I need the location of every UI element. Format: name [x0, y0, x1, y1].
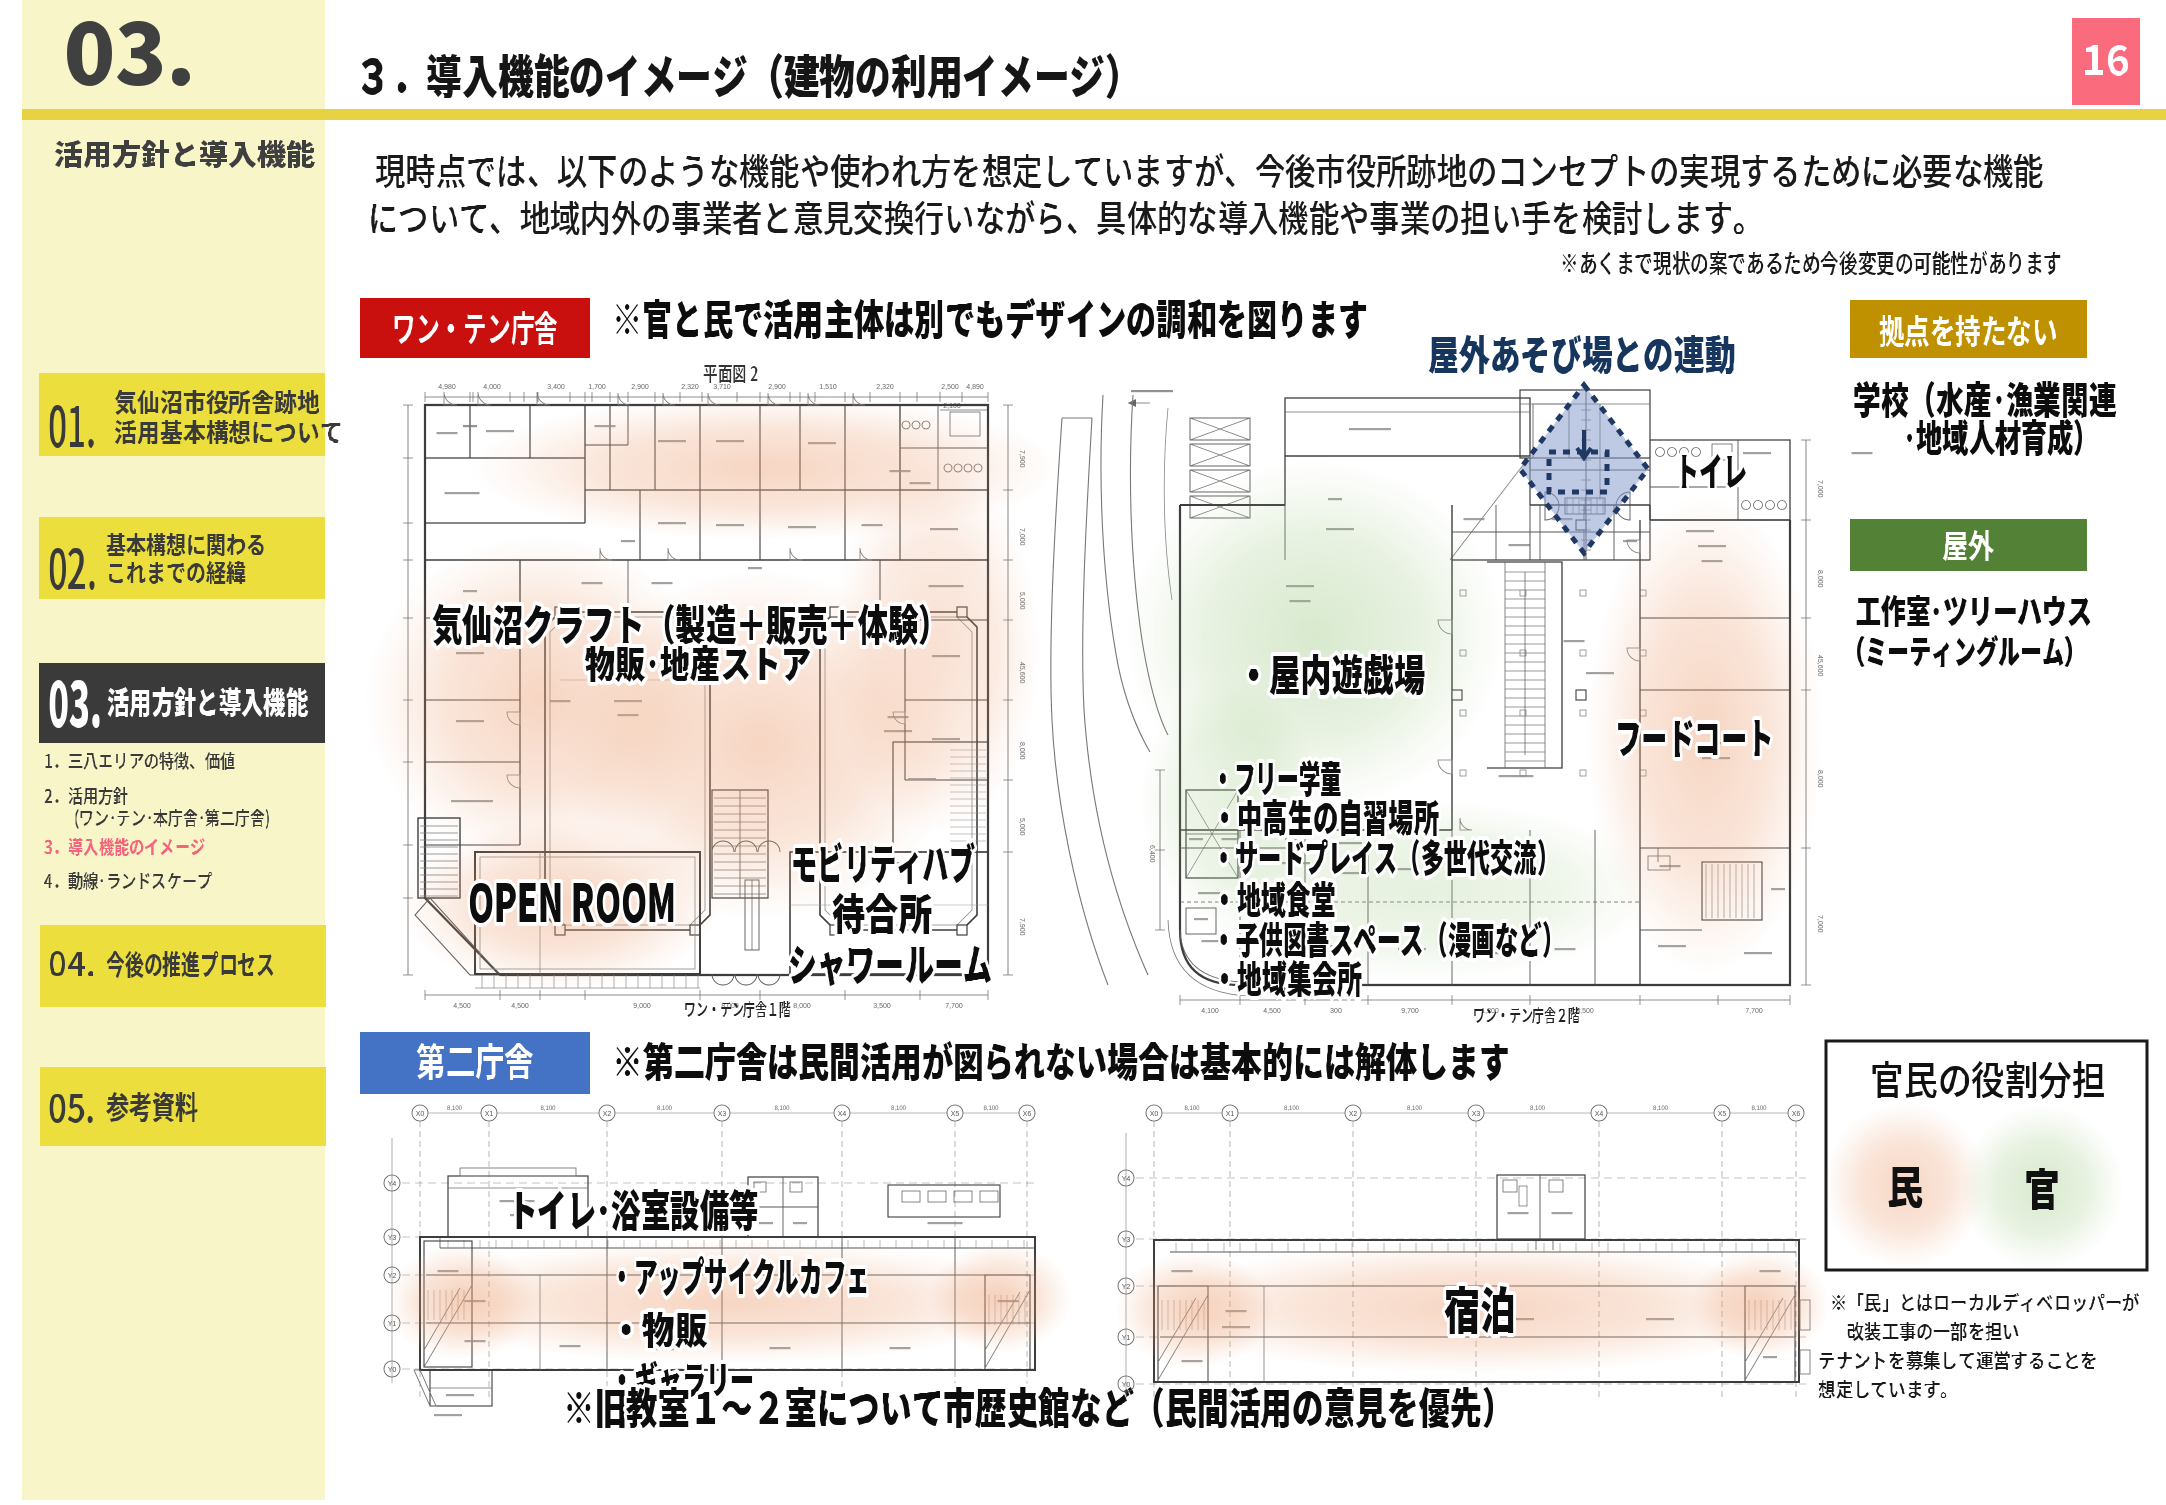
- svg-text:3,710: 3,710: [713, 384, 731, 391]
- svg-text:2,900: 2,900: [768, 384, 786, 391]
- svg-text:X5: X5: [1718, 1111, 1727, 1118]
- svg-text:4,000: 4,000: [483, 384, 501, 391]
- svg-text:X5: X5: [951, 1111, 960, 1118]
- svg-text:X0: X0: [1150, 1111, 1159, 1118]
- svg-text:X1: X1: [1226, 1111, 1235, 1118]
- svg-text:X0: X0: [416, 1111, 425, 1118]
- svg-text:4,980: 4,980: [438, 384, 456, 391]
- svg-text:8,000: 8,000: [1816, 570, 1823, 588]
- svg-text:3,400: 3,400: [547, 384, 565, 391]
- svg-text:2,500: 2,500: [941, 384, 959, 391]
- svg-text:8,100: 8,100: [774, 1106, 790, 1112]
- svg-text:9,700: 9,700: [1401, 1008, 1419, 1015]
- svg-text:8,100: 8,100: [1653, 1106, 1669, 1112]
- svg-text:8,100: 8,100: [1284, 1106, 1300, 1112]
- svg-text:4,890: 4,890: [966, 384, 984, 391]
- svg-text:4,500: 4,500: [453, 1003, 471, 1010]
- svg-text:8,100: 8,100: [1407, 1106, 1423, 1112]
- svg-text:8,100: 8,100: [447, 1106, 463, 1112]
- svg-text:8,100: 8,100: [657, 1106, 673, 1112]
- svg-text:5,000: 5,000: [1018, 818, 1025, 836]
- svg-text:3,500: 3,500: [873, 1003, 891, 1010]
- svg-text:8,100: 8,100: [1530, 1106, 1546, 1112]
- svg-text:8,100: 8,100: [1184, 1106, 1200, 1112]
- svg-text:X6: X6: [1792, 1111, 1801, 1118]
- svg-text:X4: X4: [1595, 1111, 1604, 1118]
- svg-text:X4: X4: [838, 1111, 847, 1118]
- svg-text:7,700: 7,700: [945, 1003, 963, 1010]
- svg-text:X2: X2: [603, 1111, 612, 1118]
- svg-text:7,900: 7,900: [1018, 918, 1025, 936]
- svg-text:8,100: 8,100: [891, 1106, 907, 1112]
- svg-text:X2: X2: [1349, 1111, 1358, 1118]
- svg-text:1,510: 1,510: [819, 384, 837, 391]
- svg-text:8,100: 8,100: [1751, 1106, 1767, 1112]
- svg-text:1,700: 1,700: [588, 384, 606, 391]
- svg-text:4,500: 4,500: [511, 1003, 529, 1010]
- svg-text:8,000: 8,000: [793, 1003, 811, 1010]
- svg-text:2,320: 2,320: [876, 384, 894, 391]
- svg-text:7,000: 7,000: [1816, 480, 1823, 498]
- svg-text:X1: X1: [485, 1111, 494, 1118]
- svg-text:4,100: 4,100: [1201, 1008, 1219, 1015]
- svg-text:300: 300: [1330, 1008, 1342, 1015]
- svg-text:2,320: 2,320: [681, 384, 699, 391]
- svg-text:8,100: 8,100: [540, 1106, 556, 1112]
- svg-text:4,500: 4,500: [1263, 1008, 1281, 1015]
- svg-text:X3: X3: [1472, 1111, 1481, 1118]
- svg-text:7,000: 7,000: [1816, 915, 1823, 933]
- svg-text:X3: X3: [718, 1111, 727, 1118]
- svg-text:2,900: 2,900: [631, 384, 649, 391]
- svg-text:X6: X6: [1023, 1111, 1032, 1118]
- svg-text:9,000: 9,000: [633, 1003, 651, 1010]
- svg-text:8,100: 8,100: [983, 1106, 999, 1112]
- svg-text:7,700: 7,700: [1745, 1008, 1763, 1015]
